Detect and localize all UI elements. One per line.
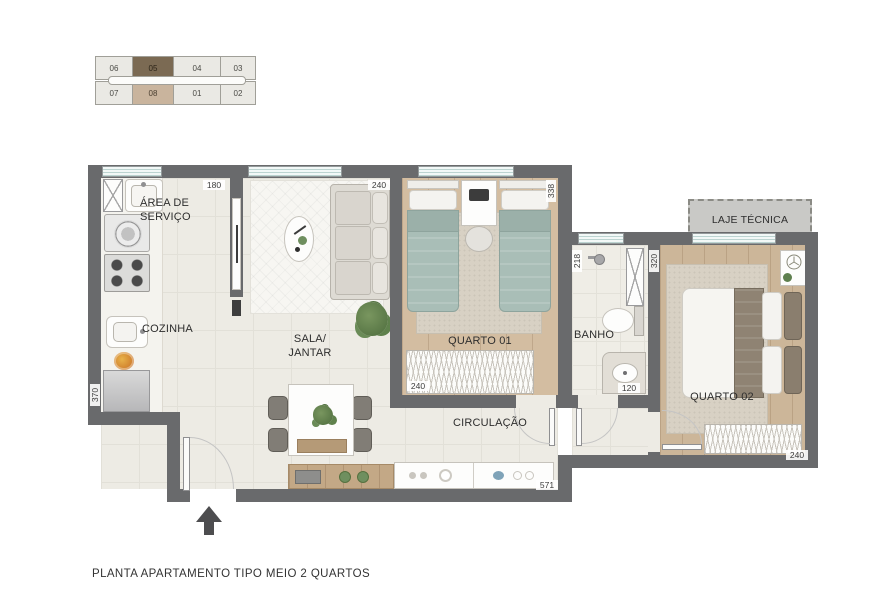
window-service-area [102,166,162,177]
bedroom2-door-leaf [662,444,702,450]
shower-glass-panel [626,248,644,306]
decor-green [339,471,351,483]
dim-kitchen-depth: 370 [90,384,100,406]
dim-bathroom-width: 120 [618,383,640,393]
label-living-dining: SALA/ JANTAR [275,332,345,360]
coffee-table [284,216,314,262]
decor-bowl [439,469,452,482]
technical-slab-label: LAJE TÉCNICA [690,213,810,227]
sofa-seat [335,261,371,295]
decor-ring [513,471,522,480]
bed1-headboard [407,180,459,189]
decor-dish [493,471,504,480]
window-bedroom1 [418,166,514,177]
dim-bedroom1-wardrobe: 240 [407,381,429,391]
sink-basin [113,322,137,342]
dim-bathroom-depth: 218 [572,250,582,272]
sliding-door-panel [232,198,241,290]
door-handle [236,225,238,263]
table-plant [298,236,307,245]
unit-number: 06 [110,64,119,73]
dim-living-width: 240 [368,180,390,190]
dining-chair [352,396,372,420]
wall-right-block-right [805,232,818,468]
unit-number: 01 [193,89,202,98]
faucet [141,182,146,187]
bathroom-door-opening [578,395,618,408]
sofa-seat [335,191,371,225]
decor-ring [525,471,534,480]
north-arrow-icon [196,506,222,535]
unit-number: 03 [234,64,243,73]
north-arrow-head [196,506,222,522]
wall-right-block-bottom [558,455,818,468]
decor-dot [420,472,427,479]
bedroom1-door-opening [516,395,556,408]
bed2-blanket [499,210,551,312]
label-kitchen: COZINHA [142,322,222,336]
entry-door-leaf [183,437,190,491]
plant [356,302,388,336]
nightstand-plant [783,273,792,282]
label-bathroom: BANHO [574,328,634,342]
duct-shaft [103,179,123,212]
table-decor [294,225,307,235]
dining-chair [352,428,372,452]
label-bedroom2: QUARTO 02 [672,390,772,404]
bed2-headboard [499,180,551,189]
bedroom1-nightstand [461,180,497,226]
vanity-faucet [623,371,627,375]
refrigerator [103,370,150,412]
sofa-back-pillow [372,192,388,224]
wall-switch-box [232,300,241,316]
fruit-bowl [114,352,134,370]
fan-decor-icon [785,253,803,271]
wall [558,165,572,408]
decor-green [357,471,369,483]
dim-circulation-length: 571 [536,480,558,490]
window-bathroom [578,233,624,244]
dining-chair [268,428,288,452]
bed1-blanket [407,210,459,312]
sofa-seat [335,226,371,260]
bedroom2-door-opening [648,412,660,452]
dim-bedroom2-width: 240 [786,450,808,460]
dining-bench [297,439,347,453]
bed2-pillow [762,292,782,340]
unit-number: 02 [234,89,243,98]
console-white [394,462,554,489]
unit-number: 07 [110,89,119,98]
washer-drum [114,220,142,248]
table-decor-dot [295,247,300,252]
dim-bedroom2-depth: 320 [649,250,659,272]
unit-number: 05 [149,64,158,73]
bed-double-blanket [734,288,764,398]
decor-dot [409,472,416,479]
bed2-pillow [501,190,549,210]
unit-number: 04 [193,64,202,73]
wall-bedroom1-left [390,165,402,408]
key-plan-corridor [108,76,246,85]
bed1-pillow [409,190,457,210]
sofa-back-pillow [372,262,388,294]
dining-table-plant [313,405,333,425]
dining-chair [268,396,288,420]
bed2-fold [500,211,550,232]
entry-door-opening [190,489,236,502]
bed2-back-pillow [784,346,802,394]
bedroom1-stool [465,226,493,252]
stove-cooktop [104,254,150,292]
dining-table [288,384,354,456]
label-bedroom1: QUARTO 01 [430,334,530,348]
dim-service-width: 180 [203,180,225,190]
dim-bedroom1-depth: 338 [546,180,556,202]
toilet-tank [634,306,644,336]
bed2-pillow [762,346,782,394]
window-living [248,166,342,177]
sideboard-wood [288,464,394,489]
bedroom2-nightstand [780,250,806,286]
bed1-fold [408,211,458,232]
floor-plan-page: 06 05 04 03 07 08 01 02 LAJE TÉCNICA [0,0,892,614]
console-divider [473,463,474,488]
window-bedroom2 [692,233,776,244]
nightstand-tray [469,189,489,201]
unit-number: 08 [149,89,158,98]
shower-head [594,254,605,265]
wall-corner [558,455,572,502]
north-arrow-stem [204,522,214,535]
label-service-area: ÁREA DE SERVIÇO [140,196,220,224]
plan-title: PLANTA APARTAMENTO TIPO MEIO 2 QUARTOS [92,568,370,580]
sofa [330,184,390,300]
label-circulation: CIRCULAÇÃO [430,416,550,430]
sofa-back-pillow [372,227,388,259]
sideboard-tray [295,470,321,484]
bed2-back-pillow [784,292,802,340]
